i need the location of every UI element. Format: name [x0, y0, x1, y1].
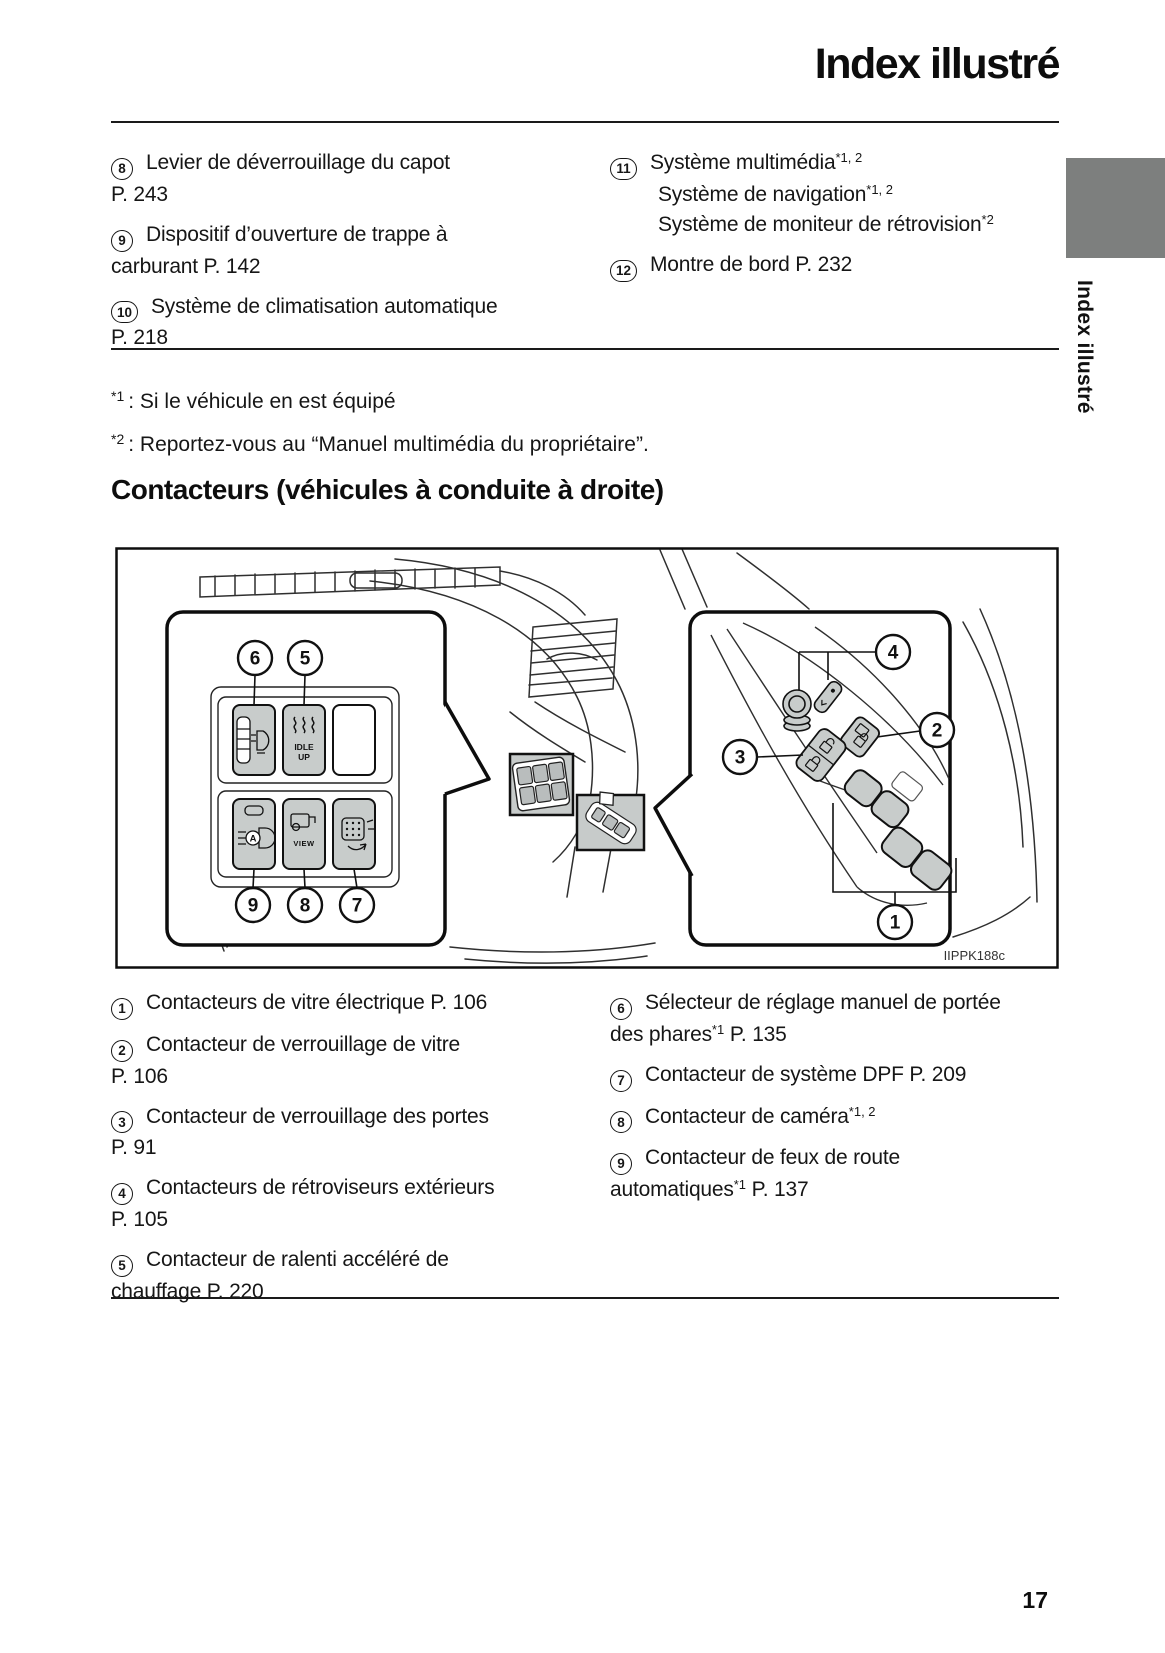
top-list-right-column: 11Système multimédia*1, 2 Système de nav…: [610, 148, 1062, 292]
svg-text:IDLE: IDLE: [294, 742, 314, 752]
callout-1: 1: [878, 905, 912, 939]
item-continuation: des phares*1 P. 135: [610, 1020, 1062, 1050]
item-continuation: P. 243: [111, 180, 583, 210]
svg-text:1: 1: [890, 913, 901, 934]
item-number-circle: 6: [610, 998, 632, 1020]
list-item-4: 4Contacteurs de rétroviseurs extérieurs …: [111, 1173, 583, 1235]
bottom-list-right-column: 6Sélecteur de réglage manuel de portée d…: [610, 988, 1062, 1215]
item-number-circle: 4: [111, 1183, 133, 1205]
chapter-tab-marker: [1066, 158, 1165, 258]
svg-text:5: 5: [300, 649, 311, 670]
blank-switch: [333, 705, 375, 775]
item-continuation: automatiques*1 P. 137: [610, 1175, 1062, 1205]
item-continuation: carburant P. 142: [111, 252, 583, 282]
item-continuation: Système de moniteur de rétrovision*2: [610, 210, 1062, 240]
svg-text:7: 7: [352, 896, 363, 917]
list-item-12: 12Montre de bord P. 232: [610, 250, 1062, 282]
item-number-circle: 11: [610, 158, 637, 180]
svg-text:4: 4: [888, 643, 899, 664]
list-item-9: 9Dispositif d’ouverture de trappe à carb…: [111, 220, 583, 282]
item-number-circle: 3: [111, 1111, 133, 1133]
callout-5: 5: [288, 641, 322, 675]
item-number-circle: 8: [610, 1111, 632, 1133]
list-item-8: 8Levier de déverrouillage du capot P. 24…: [111, 148, 583, 210]
list-item-11: 11Système multimédia*1, 2 Système de nav…: [610, 148, 1062, 240]
page-title: Index illustré: [815, 40, 1059, 89]
chapter-tab-label: Index illustré: [1072, 280, 1096, 450]
item-number-circle: 5: [111, 1255, 133, 1277]
divider-top: [111, 121, 1059, 123]
svg-text:8: 8: [300, 896, 311, 917]
item-continuation: Système de navigation*1, 2: [610, 180, 1062, 210]
figure-dashboard-switches: IDLE UP A VIEW: [115, 547, 1059, 969]
item-number-circle: 7: [610, 1070, 632, 1092]
footnote-marker: *2: [111, 431, 124, 447]
callout-8: 8: [288, 888, 322, 922]
list-item-2: 2Contacteur de verrouillage de vitre P. …: [111, 1030, 583, 1092]
list-item-3: 3Contacteur de verrouillage des portes P…: [111, 1102, 583, 1164]
item-number-circle: 12: [610, 260, 637, 282]
bottom-list-left-column: 1Contacteurs de vitre électrique P. 106 …: [111, 988, 583, 1317]
location-inset-switch-panel: [510, 754, 573, 815]
svg-text:UP: UP: [298, 752, 310, 762]
list-item-10: 10Système de climatisation automatique P…: [111, 292, 583, 354]
item-continuation: P. 91: [111, 1133, 583, 1163]
location-inset-door-switches: [577, 787, 647, 850]
svg-text:6: 6: [250, 649, 261, 670]
divider-bottom: [111, 1297, 1059, 1299]
callout-2: 2: [920, 713, 954, 747]
svg-text:A: A: [250, 834, 257, 845]
item-continuation: P. 106: [111, 1062, 583, 1092]
list-item-8b: 8Contacteur de caméra*1, 2: [610, 1102, 1062, 1134]
dpf-switch: [333, 799, 375, 869]
item-number-circle: 2: [111, 1040, 133, 1062]
callout-6: 6: [238, 641, 272, 675]
divider-middle: [111, 348, 1059, 350]
figure-illustration: IDLE UP A VIEW: [115, 547, 1059, 969]
callout-9: 9: [236, 888, 270, 922]
top-list-left-column: 8Levier de déverrouillage du capot P. 24…: [111, 148, 583, 363]
callout-3: 3: [723, 740, 757, 774]
list-item-7: 7Contacteur de système DPF P. 209: [610, 1060, 1062, 1092]
item-continuation: chauffage P. 220: [111, 1277, 583, 1307]
item-number-circle: 10: [111, 301, 138, 323]
camera-view-switch: VIEW: [283, 799, 325, 869]
page-number: 17: [1022, 1587, 1048, 1614]
svg-text:VIEW: VIEW: [293, 839, 315, 848]
item-number-circle: 1: [111, 998, 133, 1020]
item-continuation: P. 105: [111, 1205, 583, 1235]
headlight-leveling-switch: [233, 705, 275, 775]
callout-7: 7: [340, 888, 374, 922]
auto-high-beam-switch: A: [233, 799, 275, 869]
list-item-9b: 9Contacteur de feux de route automatique…: [610, 1143, 1062, 1205]
idle-up-switch: IDLE UP: [283, 705, 325, 775]
callout-4: 4: [876, 635, 910, 669]
detail-box-switch-panel: IDLE UP A VIEW: [167, 612, 489, 945]
section-heading: Contacteurs (véhicules à conduite à droi…: [111, 474, 664, 506]
list-item-6: 6Sélecteur de réglage manuel de portée d…: [610, 988, 1062, 1050]
footnote-2: *2: Reportez-vous au “Manuel multimédia …: [111, 430, 649, 460]
item-number-circle: 9: [111, 230, 133, 252]
svg-text:3: 3: [735, 748, 746, 769]
detail-box-door-switches: 4 2 3 1: [655, 612, 956, 945]
footnote-1: *1: Si le véhicule en est équipé: [111, 387, 396, 417]
list-item-1: 1Contacteurs de vitre électrique P. 106: [111, 988, 583, 1020]
footnote-marker: *1: [111, 388, 124, 404]
figure-code: IIPPK188c: [944, 948, 1006, 963]
item-number-circle: 8: [111, 158, 133, 180]
svg-text:2: 2: [932, 721, 943, 742]
svg-text:9: 9: [248, 896, 259, 917]
mirror-adjust-knob: [783, 690, 811, 731]
item-number-circle: 9: [610, 1153, 632, 1175]
